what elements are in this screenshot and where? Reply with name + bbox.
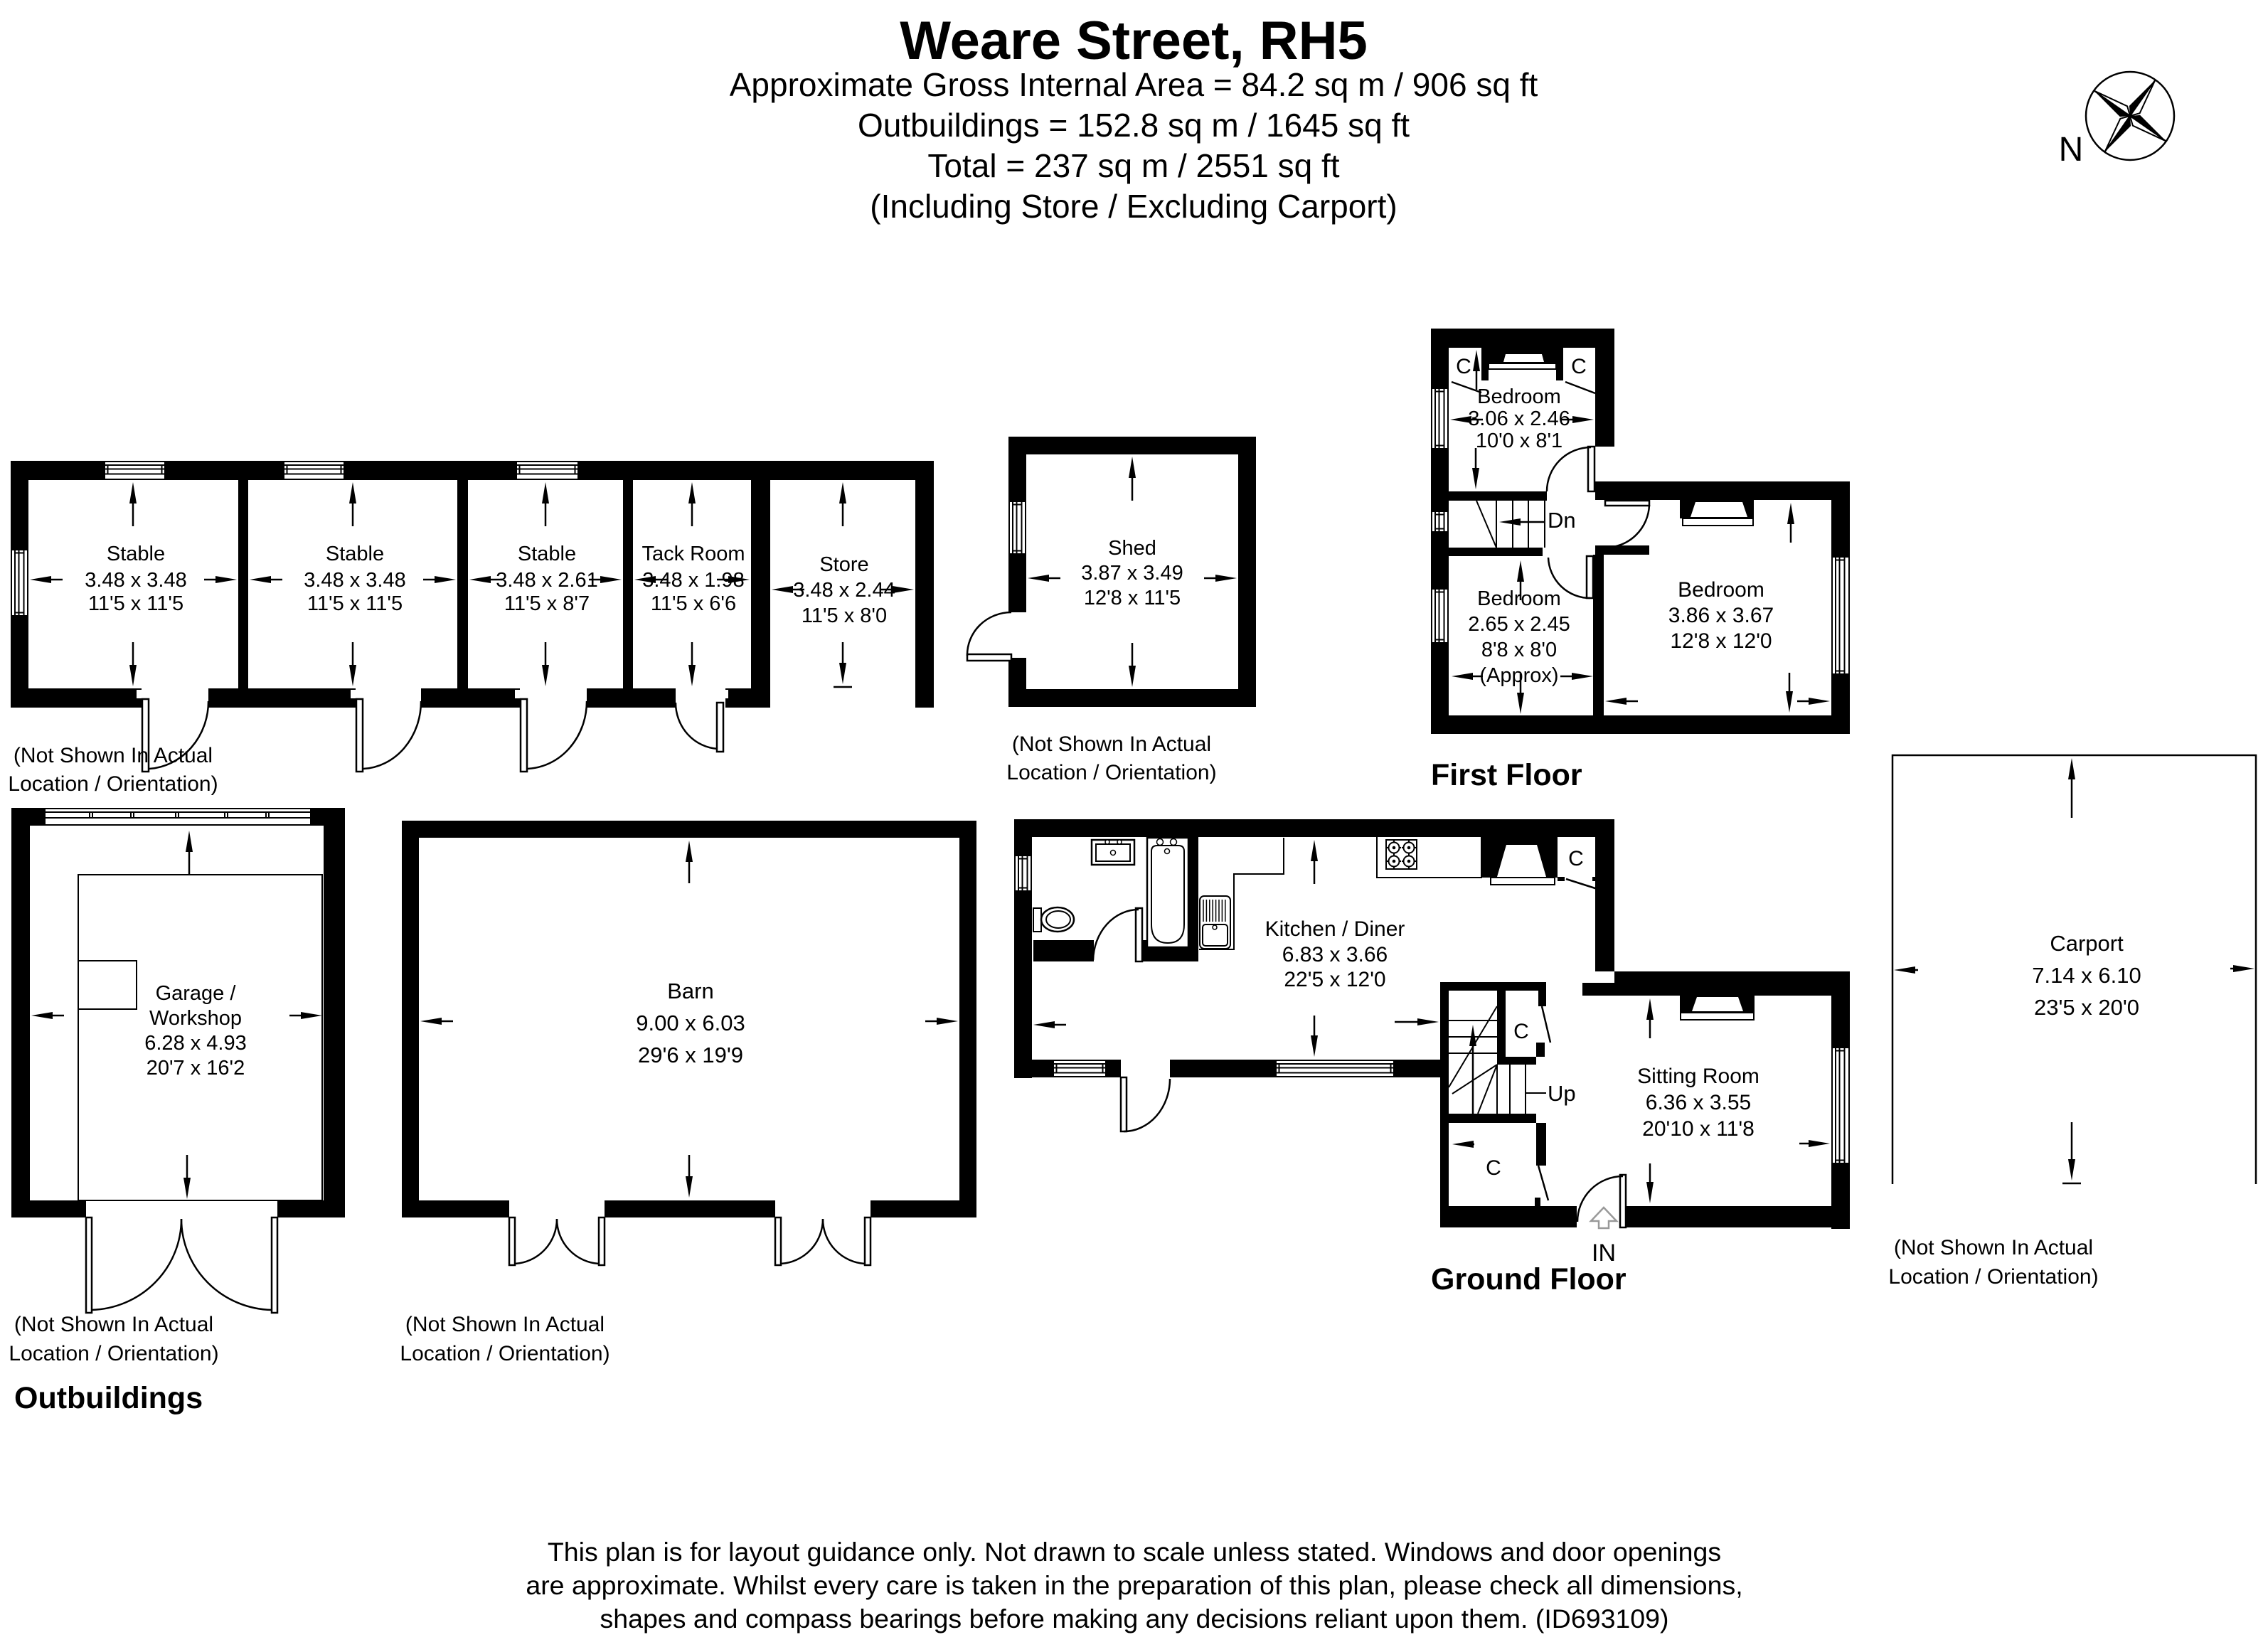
svg-text:10'0 x 8'1: 10'0 x 8'1 bbox=[1476, 430, 1562, 452]
svg-text:Bedroom: Bedroom bbox=[1477, 385, 1561, 408]
svg-text:22'5 x 12'0: 22'5 x 12'0 bbox=[1284, 968, 1385, 991]
svg-text:3.48 x 3.48: 3.48 x 3.48 bbox=[85, 569, 187, 592]
svg-text:Store: Store bbox=[819, 553, 868, 576]
svg-text:3.48 x 2.44: 3.48 x 2.44 bbox=[793, 579, 895, 602]
svg-text:Dn: Dn bbox=[1548, 508, 1576, 533]
svg-text:3.48 x 3.48: 3.48 x 3.48 bbox=[304, 569, 406, 592]
svg-text:Approximate Gross Internal Are: Approximate Gross Internal Area = 84.2 s… bbox=[730, 66, 1538, 103]
svg-text:Total = 237 sq m / 2551 sq ft: Total = 237 sq m / 2551 sq ft bbox=[927, 147, 1339, 184]
svg-text:Outbuildings: Outbuildings bbox=[14, 1381, 203, 1415]
svg-text:3.86 x 3.67: 3.86 x 3.67 bbox=[1668, 604, 1774, 627]
svg-text:12'8 x 12'0: 12'8 x 12'0 bbox=[1670, 629, 1772, 653]
svg-text:Up: Up bbox=[1548, 1081, 1576, 1106]
svg-text:11'5 x 8'0: 11'5 x 8'0 bbox=[802, 604, 887, 627]
svg-text:Garage /: Garage / bbox=[156, 982, 237, 1005]
svg-text:(Approx): (Approx) bbox=[1479, 664, 1558, 687]
svg-text:N: N bbox=[2059, 131, 2084, 169]
svg-text:12'8 x 11'5: 12'8 x 11'5 bbox=[1084, 587, 1181, 609]
svg-text:(Not Shown In Actual: (Not Shown In Actual bbox=[14, 744, 213, 767]
svg-text:Stable: Stable bbox=[518, 543, 576, 565]
svg-text:3.06 x 2.46: 3.06 x 2.46 bbox=[1468, 407, 1570, 430]
svg-text:7.14 x 6.10: 7.14 x 6.10 bbox=[2032, 963, 2141, 988]
svg-text:Carport: Carport bbox=[2050, 931, 2124, 956]
svg-text:This plan is for layout guidan: This plan is for layout guidance only. N… bbox=[548, 1537, 1721, 1567]
svg-text:9.00 x 6.03: 9.00 x 6.03 bbox=[636, 1011, 745, 1035]
svg-text:(Including Store / Excluding C: (Including Store / Excluding Carport) bbox=[870, 188, 1397, 225]
svg-text:11'5 x 6'6: 11'5 x 6'6 bbox=[651, 592, 736, 615]
svg-text:Weare Street, RH5: Weare Street, RH5 bbox=[900, 11, 1368, 71]
svg-text:Stable: Stable bbox=[326, 543, 384, 565]
svg-text:Outbuildings = 152.8 sq m / 16: Outbuildings = 152.8 sq m / 1645 sq ft bbox=[858, 107, 1410, 144]
svg-text:Location / Orientation): Location / Orientation) bbox=[400, 1342, 609, 1365]
svg-text:8'8 x 8'0: 8'8 x 8'0 bbox=[1481, 639, 1557, 661]
svg-text:11'5 x 11'5: 11'5 x 11'5 bbox=[88, 592, 183, 615]
svg-text:Stable: Stable bbox=[107, 543, 165, 565]
svg-text:are approximate. Whilst every: are approximate. Whilst every care is ta… bbox=[526, 1570, 1742, 1600]
svg-text:C: C bbox=[1568, 847, 1584, 870]
svg-text:Tack Room: Tack Room bbox=[641, 543, 745, 565]
svg-text:(Not Shown In Actual: (Not Shown In Actual bbox=[405, 1313, 605, 1336]
svg-text:Location / Orientation): Location / Orientation) bbox=[1006, 761, 1216, 784]
svg-text:6.83 x 3.66: 6.83 x 3.66 bbox=[1282, 943, 1388, 966]
svg-text:C: C bbox=[1513, 1020, 1529, 1043]
svg-text:C: C bbox=[1456, 355, 1471, 378]
svg-text:(Not Shown In Actual: (Not Shown In Actual bbox=[1894, 1236, 2093, 1259]
svg-text:3.87 x 3.49: 3.87 x 3.49 bbox=[1081, 562, 1183, 585]
svg-text:2.65 x 2.45: 2.65 x 2.45 bbox=[1468, 613, 1570, 636]
svg-text:6.28 x 4.93: 6.28 x 4.93 bbox=[144, 1032, 247, 1055]
svg-text:Shed: Shed bbox=[1108, 537, 1156, 560]
svg-text:23'5 x 20'0: 23'5 x 20'0 bbox=[2034, 995, 2139, 1020]
svg-text:Kitchen / Diner: Kitchen / Diner bbox=[1265, 917, 1405, 941]
svg-text:Workshop: Workshop bbox=[149, 1007, 242, 1030]
svg-text:Bedroom: Bedroom bbox=[1477, 587, 1561, 610]
svg-text:3.48 x 2.61: 3.48 x 2.61 bbox=[496, 569, 598, 592]
svg-text:11'5 x 11'5: 11'5 x 11'5 bbox=[307, 592, 403, 615]
svg-text:11'5 x 8'7: 11'5 x 8'7 bbox=[504, 592, 590, 615]
svg-text:Barn: Barn bbox=[667, 979, 713, 1003]
svg-text:20'10 x 11'8: 20'10 x 11'8 bbox=[1642, 1117, 1755, 1141]
svg-text:shapes and compass bearings be: shapes and compass bearings before makin… bbox=[600, 1604, 1669, 1634]
svg-text:Sitting Room: Sitting Room bbox=[1637, 1065, 1759, 1088]
svg-text:29'6 x 19'9: 29'6 x 19'9 bbox=[638, 1043, 743, 1067]
svg-text:(Not Shown In Actual: (Not Shown In Actual bbox=[1012, 732, 1211, 756]
svg-text:Bedroom: Bedroom bbox=[1678, 578, 1764, 602]
svg-text:6.36 x 3.55: 6.36 x 3.55 bbox=[1646, 1091, 1751, 1114]
svg-text:(Not Shown In Actual: (Not Shown In Actual bbox=[14, 1313, 213, 1336]
svg-text:Location / Orientation): Location / Orientation) bbox=[8, 772, 218, 796]
svg-text:Location / Orientation): Location / Orientation) bbox=[9, 1342, 218, 1365]
svg-text:First Floor: First Floor bbox=[1431, 758, 1582, 792]
svg-text:C: C bbox=[1571, 355, 1587, 378]
svg-text:Location / Orientation): Location / Orientation) bbox=[1888, 1265, 2098, 1289]
svg-text:Ground Floor: Ground Floor bbox=[1431, 1262, 1627, 1296]
svg-text:C: C bbox=[1486, 1156, 1501, 1180]
svg-text:20'7 x 16'2: 20'7 x 16'2 bbox=[147, 1057, 245, 1080]
